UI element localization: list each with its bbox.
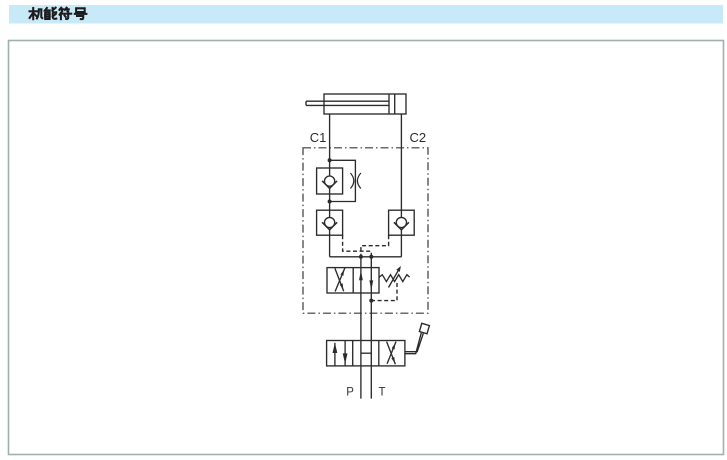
svg-text:C2: C2	[410, 130, 427, 145]
svg-text:C1: C1	[310, 130, 327, 145]
svg-text:T: T	[379, 387, 386, 399]
svg-text:P: P	[346, 387, 354, 399]
